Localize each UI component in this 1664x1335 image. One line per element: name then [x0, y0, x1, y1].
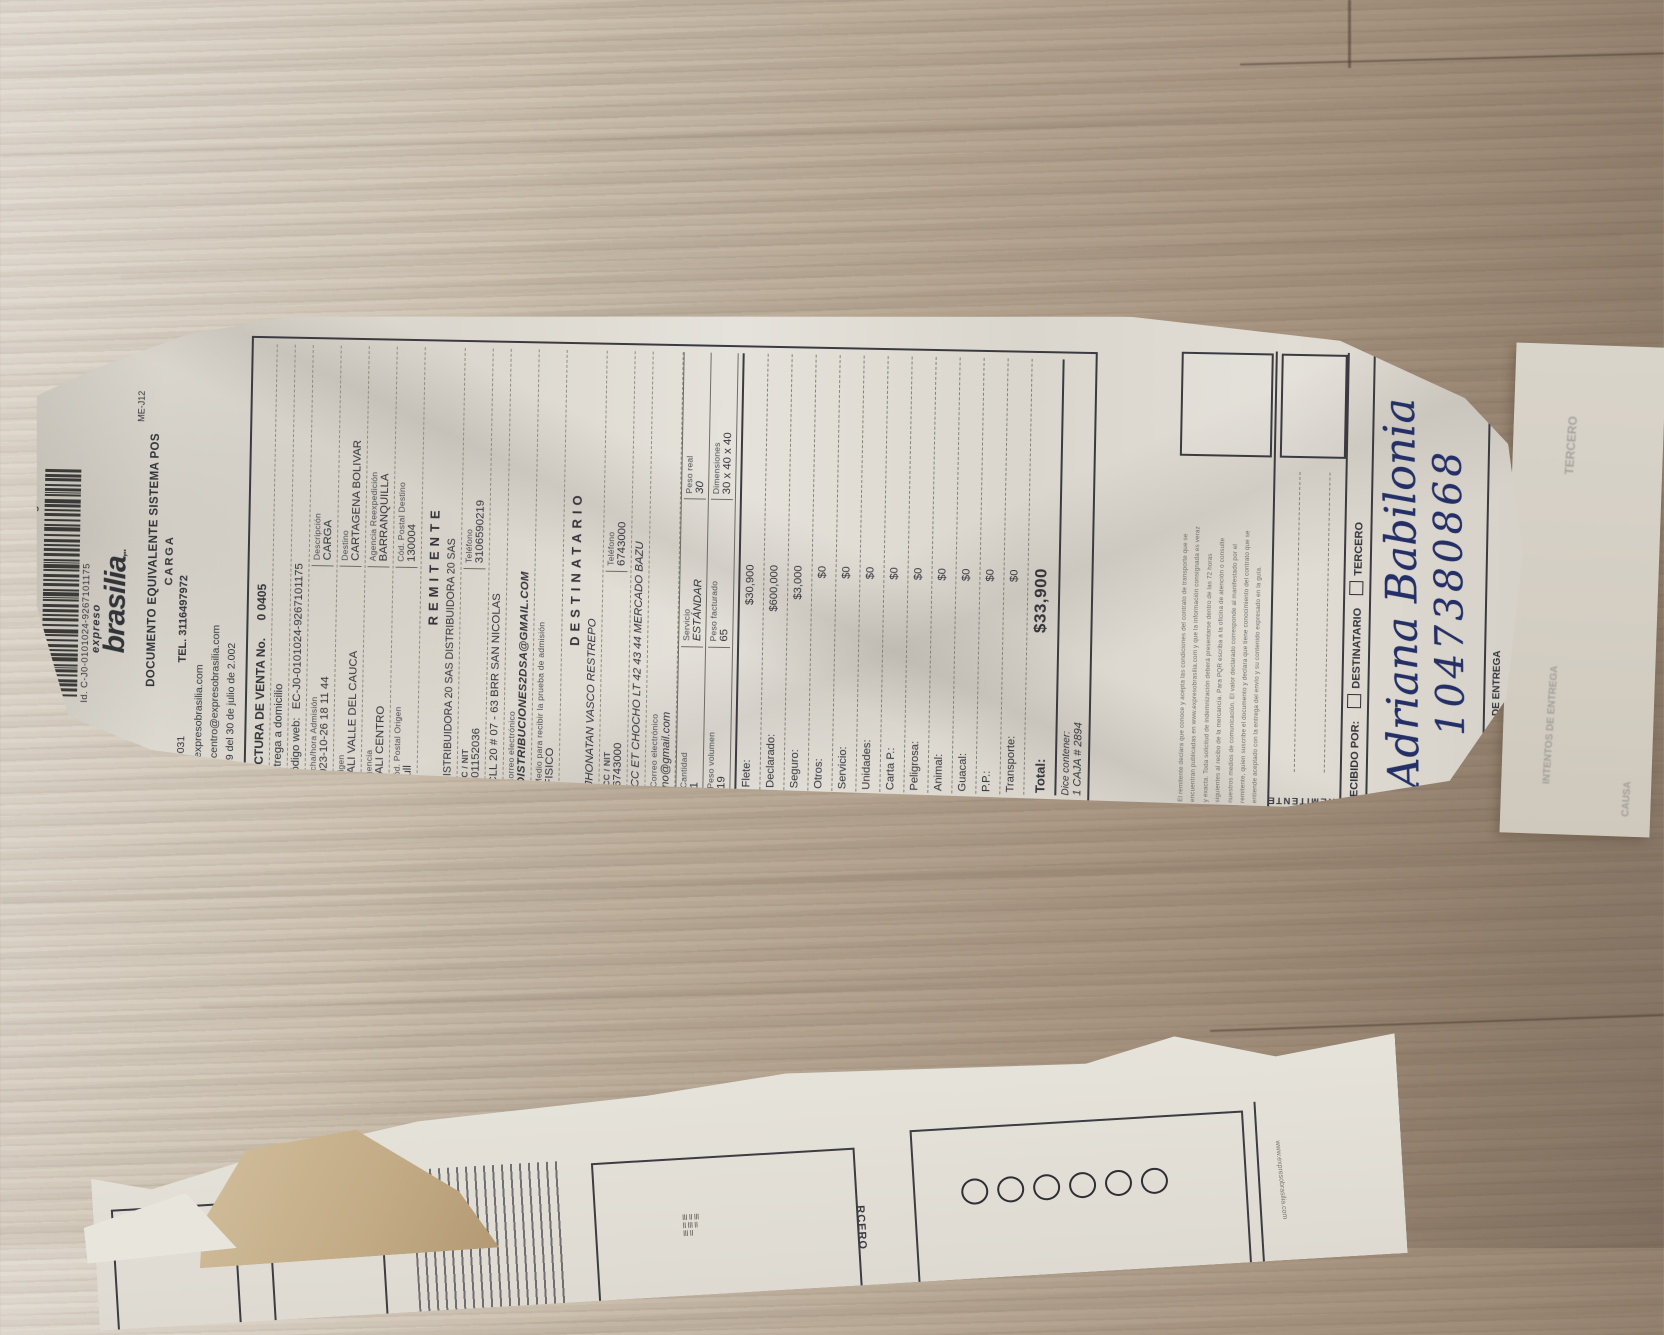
form-line	[1253, 1102, 1264, 1262]
photo-of-receipt-on-desk: { "header": { "ce_label": "CE - Contra E…	[0, 0, 1664, 1248]
marker-circle	[961, 1178, 989, 1206]
brand-suffix: ,..	[115, 549, 129, 556]
account-number: 90100031	[174, 736, 187, 783]
wood-grain-streak	[120, 234, 1619, 279]
plank-joint	[1348, 0, 1351, 68]
empty-signature-box	[1280, 354, 1348, 459]
marker-circle	[996, 1176, 1024, 1204]
wood-grain-streak	[0, 107, 1663, 158]
destinatario-correo-value: no@gmail.com	[659, 712, 672, 788]
recibido-por-label: RECIBIDO POR:	[1348, 721, 1362, 806]
codigo-web-label: Código web:	[289, 717, 302, 781]
handwriting-id: 1047380868	[1425, 397, 1474, 736]
empty-stamp-box	[1180, 352, 1274, 458]
checkbox-tercero	[1349, 581, 1363, 595]
wood-grain-streak	[0, 852, 1664, 904]
tercero-fragment-text: RCERO	[854, 1205, 869, 1250]
form-box	[591, 1148, 863, 1305]
total-label: Total:	[1032, 759, 1048, 794]
charges-list: Flete:$30,900Declarado:$600,000Seguro:$3…	[734, 353, 1032, 794]
recibido-por-row: RECIBIDO POR: DESTINATARIO TERCERO	[1345, 522, 1365, 805]
form-code: ME-J12	[136, 391, 147, 422]
codigo-web-value: EC-J0-0101024-9267101175	[291, 563, 306, 709]
micro-text-column: ||| || ||||| ||| ||||| ||	[682, 1213, 700, 1238]
peso-volumen-value: 19	[715, 648, 730, 790]
barcode	[41, 466, 81, 697]
wood-grain-streak	[200, 965, 1664, 1010]
ghost-text-intentos: INTENTOS DE ENTREGA	[1541, 665, 1560, 784]
total-value: $33,900	[1029, 568, 1052, 703]
factura-number: 0 0405	[254, 584, 269, 621]
destinatario-signature-label: DESTINATARIO	[1385, 797, 1473, 810]
fine-print: El remitente declara que conoce y acepta…	[1175, 470, 1268, 804]
section-divider	[1481, 356, 1492, 816]
remitente-signature-label: REMITENTE	[1267, 794, 1336, 806]
web-fragment-text: www.expresobrasilia.com	[1274, 1140, 1288, 1219]
ghost-text-causa: CAUSA	[1620, 781, 1633, 817]
checkbox-destinatario	[1347, 694, 1361, 708]
signature-line	[1324, 473, 1331, 773]
marker-circle	[1104, 1169, 1132, 1197]
marker-circle	[1032, 1173, 1060, 1201]
email-line: enviocentro@expresobrasilia.com	[207, 625, 222, 784]
invoice-box: FACTURA DE VENTA No. 0 0405 Entrega a do…	[243, 336, 1098, 804]
cantidad-value: 1	[688, 647, 703, 789]
receipt-document: CE - Contra Entrega Id. C-J0-0101024-926…	[21, 276, 1535, 817]
peso-real-value: 30	[694, 352, 709, 494]
web-line: www.expresobrasilia.com	[191, 664, 205, 783]
marker-circle	[1140, 1167, 1168, 1195]
peso-facturado-value: 65	[718, 500, 733, 642]
wood-grain-streak	[0, 47, 900, 75]
ce-contra-entrega-label: CE - Contra Entrega	[25, 408, 41, 688]
destinatario-correo-label: Correo electrónico	[648, 714, 659, 788]
handwriting-name: Adriana Babilonia	[1375, 398, 1430, 789]
shipping-receipt: CE - Contra Entrega Id. C-J0-0101024-926…	[21, 276, 1535, 819]
marker-circle	[1068, 1171, 1096, 1199]
plank-joint	[1210, 1014, 1664, 1032]
opcion-tercero: TERCERO	[1353, 522, 1366, 576]
handwritten-signature: Adriana Babilonia 1047380868	[1375, 397, 1475, 789]
resolution-line: 00159 del 30 de julio de 2.002	[223, 643, 238, 784]
brand-brasilia: brasilia	[98, 556, 133, 654]
factura-label: FACTURA DE VENTA No.	[251, 638, 268, 780]
dimensiones-value: 30 x 40 x 40	[721, 353, 736, 495]
underlying-receipt-edge: TERCERO INTENTOS DE ENTREGA CAUSA	[1499, 343, 1664, 838]
plank-joint	[1240, 52, 1664, 65]
ghost-text-tercero: TERCERO	[1562, 416, 1580, 476]
doc-subtitle: CARGA	[160, 360, 180, 760]
opcion-destinatario: DESTINATARIO	[1350, 608, 1364, 689]
signature-line	[1294, 472, 1301, 772]
phone-line: TEL. 3116497972	[177, 575, 191, 663]
brand-logo: expreso brasilia,..	[90, 549, 135, 654]
servicio-value: ESTÁNDAR	[691, 500, 706, 642]
